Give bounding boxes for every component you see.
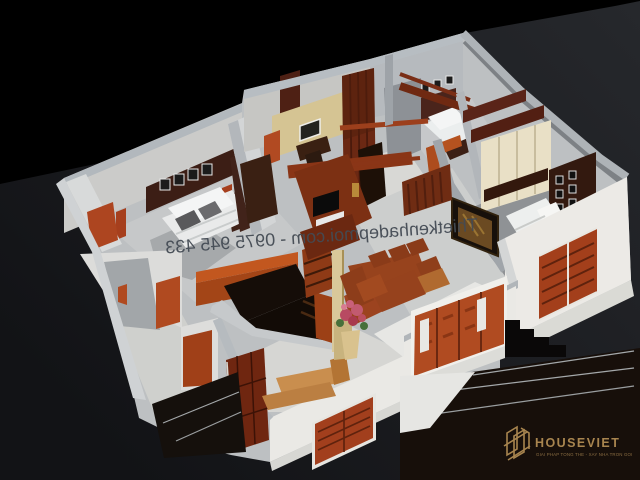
svg-text:HOUSEVIET: HOUSEVIET xyxy=(535,436,620,450)
svg-text:GIAI PHAP TONG THE - XAY NHA T: GIAI PHAP TONG THE - XAY NHA TRON GOI xyxy=(536,452,632,457)
